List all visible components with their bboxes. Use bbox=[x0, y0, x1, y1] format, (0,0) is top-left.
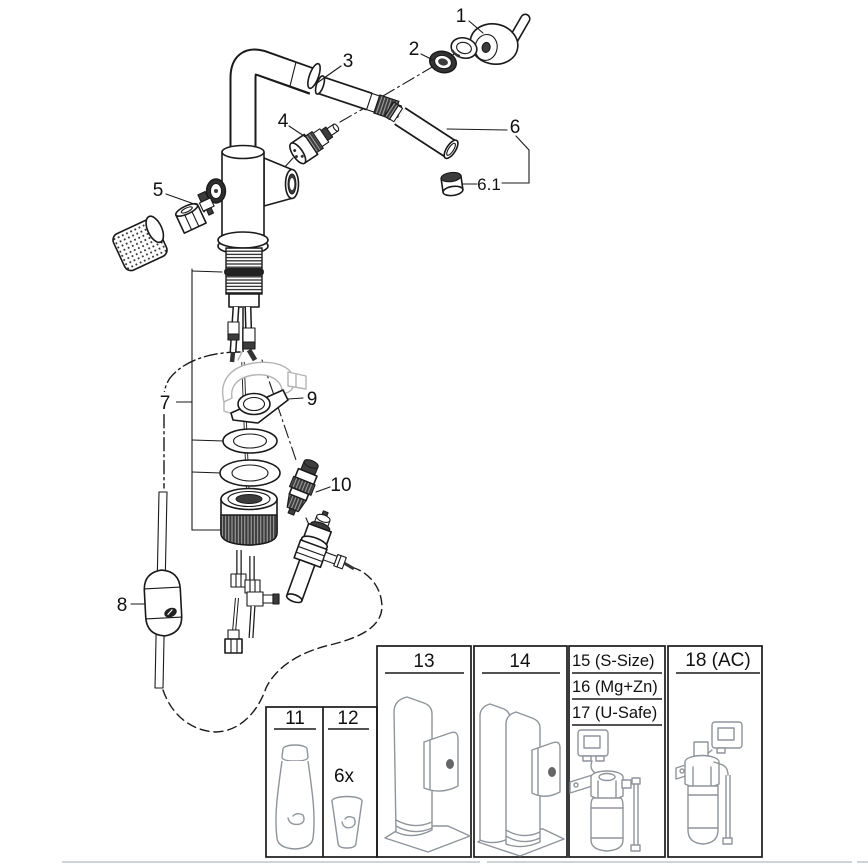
label-box-16: 16 (Mg+Zn) bbox=[572, 678, 658, 696]
carafe-illustration bbox=[276, 745, 314, 849]
part10-cartridge bbox=[280, 456, 323, 518]
leader-lines bbox=[131, 21, 529, 604]
part7-bracket-lines bbox=[174, 269, 227, 530]
exploded-parts-diagram-page: 1 2 3 4 5 6 6.1 7 8 9 10 11 12 6x 13 14 … bbox=[0, 0, 868, 868]
glass-illustration bbox=[332, 797, 362, 849]
part8-inline-filter bbox=[143, 569, 182, 637]
label-part-10: 10 bbox=[330, 475, 351, 496]
label-part-8: 8 bbox=[117, 595, 128, 616]
label-part-6: 6 bbox=[510, 117, 521, 138]
label-part-6-1: 6.1 bbox=[477, 175, 501, 194]
under-sink-fittings bbox=[225, 550, 279, 653]
label-box-14: 14 bbox=[509, 651, 531, 672]
label-part-2: 2 bbox=[409, 39, 420, 60]
label-box-13: 13 bbox=[413, 651, 434, 672]
part4-cartridge bbox=[287, 117, 344, 167]
label-part-4: 4 bbox=[278, 111, 289, 132]
faucet-body bbox=[207, 146, 299, 255]
label-box-11: 11 bbox=[285, 708, 305, 729]
washer-1 bbox=[223, 429, 277, 453]
washer-2 bbox=[220, 460, 280, 486]
part6-hose-tube bbox=[383, 100, 460, 160]
part1-handle bbox=[466, 3, 532, 70]
filter-18-illustration bbox=[676, 722, 742, 844]
label-part-1: 1 bbox=[456, 6, 467, 27]
cooler-illustration bbox=[478, 704, 564, 856]
label-box-12: 12 bbox=[337, 708, 358, 729]
label-box-15: 15 (S-Size) bbox=[572, 652, 655, 670]
mounting-nut bbox=[221, 489, 277, 546]
label-quantity-6x: 6x bbox=[334, 766, 355, 787]
check-valve-assembly bbox=[280, 507, 369, 617]
carbonator-illustration bbox=[385, 697, 470, 852]
label-part-9: 9 bbox=[307, 389, 318, 410]
filter-15-17-illustration bbox=[570, 730, 640, 851]
part2-washers bbox=[427, 35, 479, 76]
label-part-3: 3 bbox=[343, 51, 354, 72]
label-part-5: 5 bbox=[153, 180, 164, 201]
part5-valve-set bbox=[110, 191, 217, 273]
exploded-parts-diagram: 1 2 3 4 5 6 6.1 7 8 9 10 11 12 6x 13 14 … bbox=[0, 0, 868, 868]
faucet-shank bbox=[224, 248, 264, 307]
label-part-7: 7 bbox=[160, 393, 171, 414]
part9-mounting-bracket bbox=[231, 390, 288, 423]
part6-1-aerator bbox=[440, 171, 463, 197]
label-box-17: 17 (U-Safe) bbox=[572, 704, 657, 722]
label-box-18: 18 (AC) bbox=[685, 650, 750, 671]
